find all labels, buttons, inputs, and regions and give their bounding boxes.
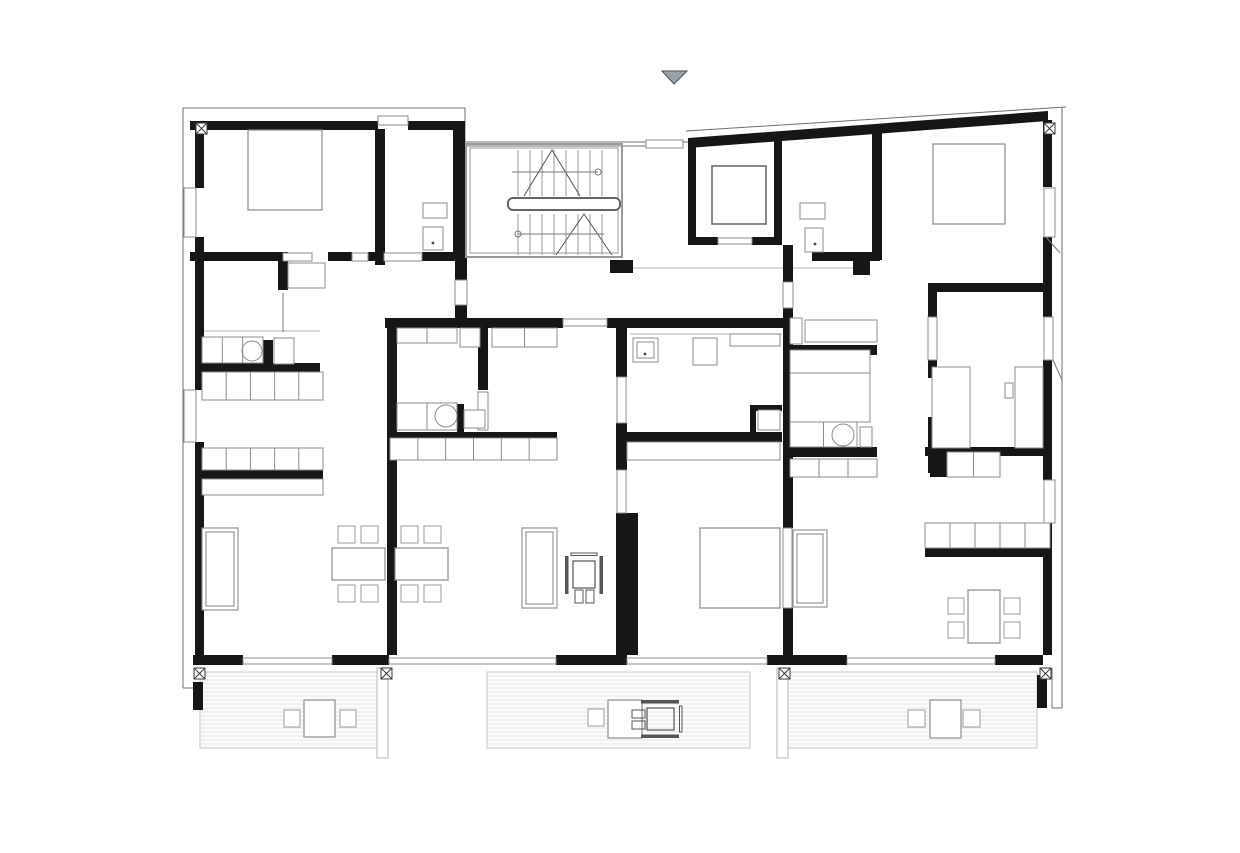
exterior-interior-wall xyxy=(783,245,793,282)
exterior-interior-wall xyxy=(688,139,696,245)
window xyxy=(783,528,792,608)
wheelchair-seat xyxy=(573,561,595,588)
exterior-interior-wall xyxy=(853,260,870,275)
kitchen-bath-fixture xyxy=(730,334,780,346)
kitchen-bath-fixture xyxy=(637,342,654,358)
window xyxy=(1044,480,1055,523)
window xyxy=(718,238,752,244)
chair xyxy=(361,585,378,602)
table xyxy=(304,700,335,737)
exterior-interior-wall xyxy=(688,237,718,245)
window xyxy=(617,470,626,513)
exterior-interior-wall xyxy=(195,470,323,479)
wheelchair-backrest xyxy=(571,553,597,556)
kitchen-bath-fixture xyxy=(800,203,825,219)
entrance-marker xyxy=(662,71,687,84)
table xyxy=(930,700,961,738)
exterior-interior-wall xyxy=(455,305,467,318)
bed xyxy=(248,130,322,210)
wheelchair-footrest xyxy=(575,590,583,603)
exterior-interior-wall xyxy=(457,404,464,432)
window xyxy=(184,390,196,442)
kitchen-bath-fixture xyxy=(423,227,443,250)
exterior-interior-wall xyxy=(385,318,563,328)
stair-break-line xyxy=(524,150,580,196)
exterior-interior-wall xyxy=(783,608,793,655)
chair xyxy=(338,526,355,543)
window xyxy=(1044,317,1053,360)
exterior-interior-wall xyxy=(616,423,627,470)
window xyxy=(928,317,937,360)
exterior-interior-wall xyxy=(872,128,882,260)
window xyxy=(783,282,793,308)
chair xyxy=(1004,622,1020,638)
exterior-interior-wall xyxy=(1043,237,1052,317)
sofa xyxy=(202,528,238,610)
kitchen-bath-fixture xyxy=(1015,367,1043,448)
door-swing-line xyxy=(1053,360,1062,380)
exterior-interior-wall xyxy=(752,237,782,245)
exterior-interior-wall xyxy=(616,513,638,655)
exterior-interior-wall xyxy=(788,447,877,457)
chair xyxy=(338,585,355,602)
kitchen-bath-fixture xyxy=(860,427,872,447)
kitchen-bath-fixture xyxy=(202,479,323,495)
window xyxy=(847,658,995,664)
kitchen-bath-fixture xyxy=(1005,383,1013,398)
exterior-interior-wall xyxy=(607,318,783,328)
slanted-roof-wall xyxy=(688,111,1048,148)
chair xyxy=(1004,598,1020,614)
chair xyxy=(948,622,964,638)
chair xyxy=(908,710,925,727)
floor-plan-page xyxy=(0,0,1240,853)
table xyxy=(395,548,448,580)
exterior-interior-wall xyxy=(375,129,385,265)
exterior-interior-wall xyxy=(263,340,273,365)
exterior-interior-wall xyxy=(610,260,633,273)
entrance-marker xyxy=(662,71,687,84)
elevator-car xyxy=(712,166,766,224)
kitchen-bath-fixture xyxy=(288,263,325,288)
floor-plan-drawing xyxy=(0,0,1240,853)
kitchen-bath-fixture xyxy=(202,372,323,400)
kitchen-bath-fixture xyxy=(464,410,485,428)
window xyxy=(243,658,332,664)
exterior-interior-wall xyxy=(616,318,627,377)
window xyxy=(455,280,467,305)
chair xyxy=(401,585,418,602)
exterior-interior-wall xyxy=(928,292,937,317)
exterior-interior-wall xyxy=(1037,675,1047,708)
kitchen-bath-fixture xyxy=(423,203,447,218)
chair xyxy=(340,710,356,727)
exterior-interior-wall xyxy=(925,548,1047,557)
exterior-interior-wall xyxy=(190,121,378,130)
window xyxy=(184,188,196,237)
exterior-interior-wall xyxy=(190,252,278,261)
terrace-pier xyxy=(777,668,788,758)
table xyxy=(608,700,642,738)
chair xyxy=(424,585,441,602)
window xyxy=(378,116,408,125)
drain-dot xyxy=(432,242,435,245)
table xyxy=(968,590,1000,643)
wheelchair-icon xyxy=(565,553,603,603)
chair xyxy=(401,526,418,543)
exterior-interior-wall xyxy=(453,121,465,252)
kitchen-bath-fixture xyxy=(758,410,780,430)
exterior-interior-wall xyxy=(1043,360,1052,480)
wheelchair-wheel xyxy=(565,556,569,594)
kitchen-bath-fixture xyxy=(274,338,294,364)
exterior-interior-wall xyxy=(195,363,320,372)
chair xyxy=(963,710,980,727)
bed xyxy=(933,144,1005,224)
window xyxy=(283,253,312,261)
exterior-interior-wall xyxy=(812,252,880,261)
exterior-interior-wall xyxy=(422,252,467,261)
exterior-interior-wall xyxy=(193,682,203,710)
exterior-interior-wall xyxy=(193,655,243,665)
kitchen-bath-fixture xyxy=(805,228,823,252)
exterior-interior-wall xyxy=(928,283,1050,292)
chair xyxy=(284,710,300,727)
drain-dot xyxy=(814,243,817,246)
window xyxy=(384,253,422,261)
wheelchair-wheel xyxy=(600,556,604,594)
bed xyxy=(700,528,780,608)
exterior-interior-wall xyxy=(368,252,383,261)
terrace-pier xyxy=(377,668,388,758)
wheelchair-wheel xyxy=(641,735,679,739)
kitchen-bath-fixture xyxy=(627,442,780,460)
stair-handrail xyxy=(508,198,620,210)
window xyxy=(389,658,556,664)
exterior-interior-wall xyxy=(556,655,627,665)
exterior-interior-wall xyxy=(767,655,847,665)
exterior-interior-wall xyxy=(774,136,782,245)
kitchen-bath-fixture xyxy=(790,318,802,344)
window xyxy=(352,253,368,261)
kitchen-bath-fixture xyxy=(790,459,877,477)
table xyxy=(332,548,385,580)
chair xyxy=(361,526,378,543)
window xyxy=(617,377,626,423)
sofa xyxy=(793,530,827,607)
exterior-interior-wall xyxy=(387,318,397,655)
slanted-roof-wall xyxy=(688,111,1048,148)
sofa xyxy=(522,528,557,608)
exterior-interior-wall xyxy=(995,655,1043,665)
kitchen-bath-fixture xyxy=(460,328,480,347)
kitchen-bath-fixture xyxy=(925,523,1050,548)
window xyxy=(627,658,767,664)
wheelchair-footrest xyxy=(586,590,594,603)
kitchen-bath-fixture xyxy=(693,338,717,365)
wheelchair-wheel xyxy=(641,700,679,704)
exterior-interior-wall xyxy=(625,432,782,442)
kitchen-bath-fixture xyxy=(202,448,323,470)
exterior-interior-wall xyxy=(328,252,352,261)
chair xyxy=(948,598,964,614)
window xyxy=(563,319,607,326)
window xyxy=(646,140,683,148)
chair xyxy=(588,709,604,726)
elevator-car xyxy=(712,166,766,224)
window xyxy=(1044,188,1055,237)
kitchen-bath-fixture xyxy=(805,320,877,342)
kitchen-bath-fixture xyxy=(932,367,970,448)
chair xyxy=(424,526,441,543)
staircase xyxy=(466,144,622,257)
exterior-interior-wall xyxy=(332,655,389,665)
kitchen-bath-fixture xyxy=(790,373,870,422)
drain-dot xyxy=(644,353,647,356)
kitchen-bath-fixture xyxy=(790,350,870,373)
